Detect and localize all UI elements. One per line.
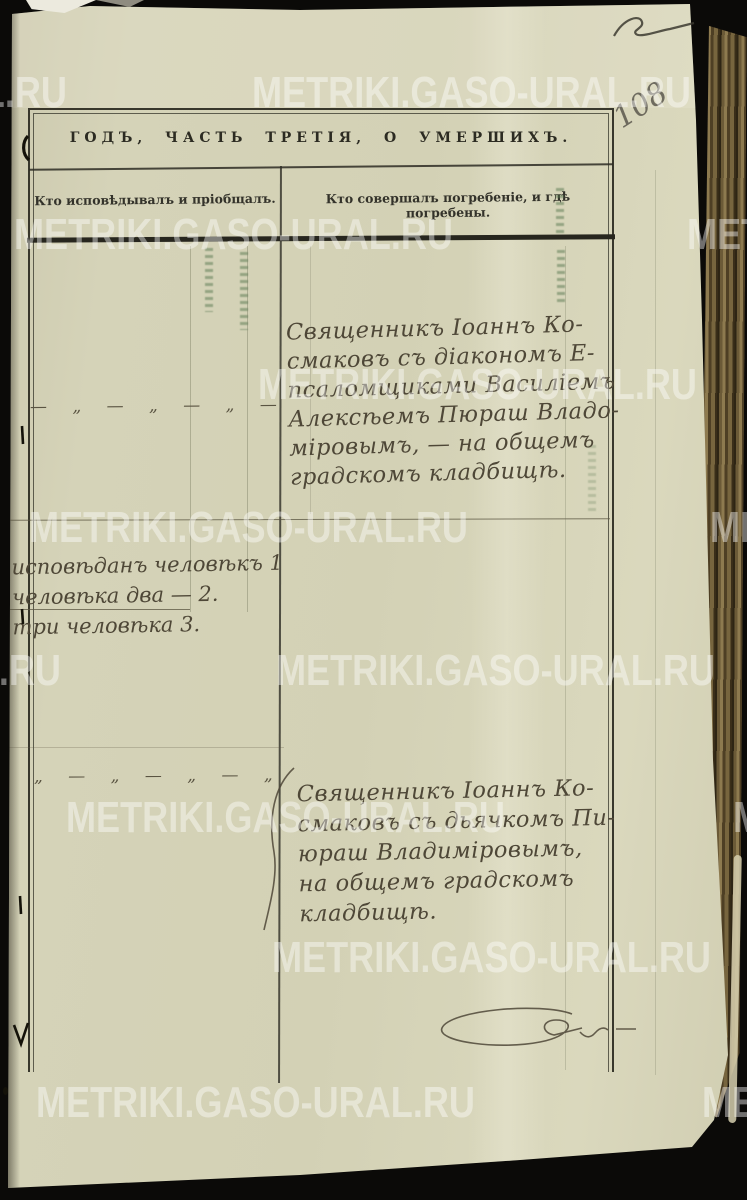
- watermark-tile: METRIKI.GASO-URAL.RU: [272, 933, 711, 983]
- watermark-tile: METRIKI.GASO-URAL.RU: [702, 1078, 747, 1128]
- binding-stitch: [18, 608, 26, 626]
- binding-stitch: [12, 1022, 30, 1048]
- corner-pencil-squiggle: [606, 8, 706, 50]
- watermark-tile: METRIKI.GASO-URAL.RU: [252, 68, 691, 118]
- column-header-confession: Кто исповѣдывалъ и пріобщалъ.: [34, 191, 276, 209]
- watermark-tile: METRIKI.GASO-URAL.RU: [687, 210, 747, 260]
- tally-lines: исповѣданъ человѣкъ 1 человѣка два — 2. …: [11, 548, 284, 643]
- ditto-marks-row: — „ — „ — „ —: [30, 395, 279, 417]
- binding-stitch: [18, 424, 26, 446]
- watermark-tile: METRIKI.GASO-URAL.RU: [258, 360, 697, 410]
- binding-stitch: [20, 134, 34, 162]
- watermark-tile: METRIKI.GASO-URAL.RU: [29, 503, 468, 553]
- watermark-tile: METRIKI.GASO-URAL.RU: [36, 1078, 475, 1128]
- ditto-marks-row: „ — „ — „ — „: [34, 765, 275, 787]
- scanned-register-photo: ГОДЪ, ЧАСТЬ ТРЕТІЯ, О УМЕРШИХЪ. Кто испо…: [0, 0, 747, 1200]
- watermark-tile: METRIKI.GASO-URAL.RU: [710, 503, 747, 553]
- bleed-through-text: [557, 250, 565, 304]
- binding-stitch: [2, 1086, 9, 1096]
- binding-stitch: [16, 894, 24, 916]
- watermark-tile: METRIKI.GASO-URAL.RU: [14, 210, 453, 260]
- top-page-corner-sliver: [96, 0, 144, 7]
- tally-line: человѣка два — 2.: [12, 578, 284, 613]
- tally-line: три человѣка 3.: [12, 608, 284, 643]
- row-separator-line: [8, 747, 284, 748]
- entry-brace-stroke: [260, 766, 302, 934]
- register-title: ГОДЪ, ЧАСТЬ ТРЕТІЯ, О УМЕРШИХЪ.: [30, 130, 612, 146]
- signature-flourish: [422, 998, 647, 1060]
- watermark-tile: METRIKI.GASO-URAL.RU: [733, 793, 747, 843]
- watermark-tile: METRIKI.GASO-URAL.RU: [66, 793, 505, 843]
- watermark-tile: METRIKI.GASO-URAL.RU: [0, 68, 67, 118]
- watermark-tile: METRIKI.GASO-URAL.RU: [276, 646, 715, 696]
- bleed-through-text: [556, 188, 564, 234]
- watermark-tile: METRIKI.GASO-URAL.RU: [0, 646, 61, 696]
- page-paper: ГОДЪ, ЧАСТЬ ТРЕТІЯ, О УМЕРШИХЪ. Кто испо…: [0, 0, 747, 1200]
- bleed-through-text: [240, 252, 248, 330]
